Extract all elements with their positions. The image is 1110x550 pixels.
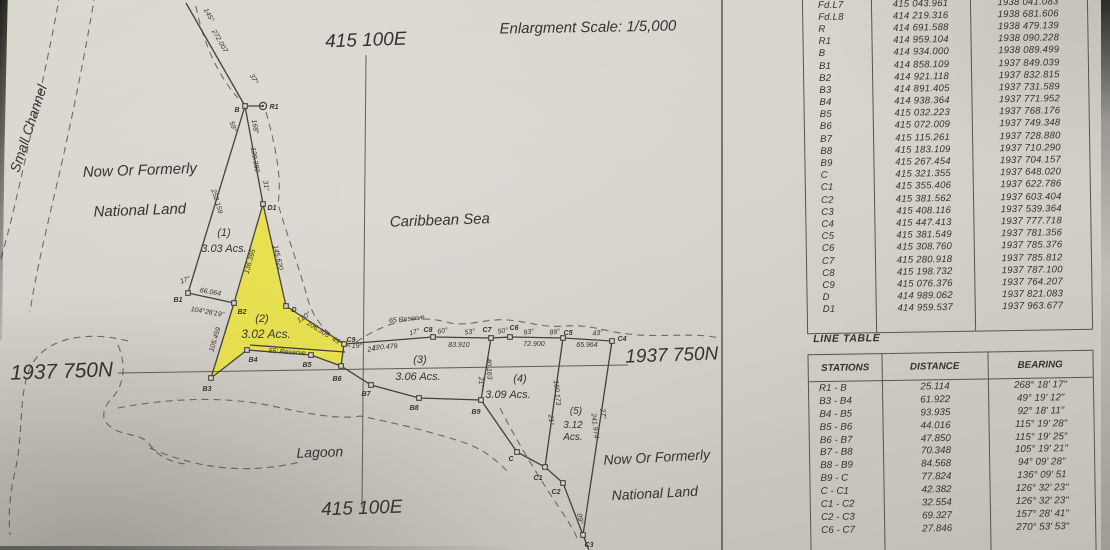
easting: 414 938.364 [872,95,971,108]
northing: 1937 710.290 [972,142,1088,155]
easting: 414 934.000 [872,46,971,59]
stations-pair: C2 - C3 [811,511,884,523]
scan-edge-right [1101,0,1110,550]
distance: 47.850 [883,432,989,445]
northing: 1938 479.139 [970,20,1086,33]
northing: 1937 832.815 [971,69,1087,82]
bearing: 270° 53' 53" [990,520,1095,533]
column-header: STATIONS [809,362,882,374]
easting: 414 959.104 [871,34,970,47]
distance: 93.935 [882,406,988,419]
distance: 42.382 [884,483,990,496]
northing: 1938 089.499 [971,44,1087,57]
easting: 414 959.537 [876,302,975,315]
easting: 414 219.316 [871,9,970,22]
distance: 61.922 [882,393,988,406]
column-header: DISTANCE [882,360,988,373]
station-id: B3 [804,84,872,96]
station-id: B2 [804,72,872,84]
northing: 1937 728.880 [972,129,1088,142]
northing: 1937 781.356 [974,227,1090,240]
northing: 1937 648.020 [973,166,1089,179]
northing: 1937 821.083 [974,288,1090,301]
bearing: 115° 19' 28" [989,417,1094,430]
stations-pair: C6 - C7 [811,524,884,536]
bearing: 92° 18' 11" [988,404,1093,417]
station-id: Fd.L7 [803,0,871,11]
easting: 415 072.009 [873,119,972,132]
easting: 415 321.355 [874,168,973,181]
distance: 44.016 [883,419,989,432]
northing: 1937 768.176 [972,105,1088,118]
station-id: R [803,23,871,35]
station-id: C [806,169,874,181]
easting: 415 198.732 [875,265,974,278]
easting: 415 032.223 [873,107,972,120]
easting: 415 408.116 [874,204,973,217]
station-id: C5 [807,230,875,242]
stations-pair: B6 - B7 [810,434,883,446]
stations-pair: B5 - B6 [810,421,883,433]
northing: 1937 764.207 [974,276,1090,289]
station-id: C6 [807,243,875,255]
station-id: C4 [806,218,874,230]
easting: 415 381.549 [875,229,974,242]
station-id: D1 [808,303,876,315]
station-id: B [804,48,872,60]
easting: 415 043.961 [871,0,970,10]
station-id: D [807,291,875,303]
station-id: R1 [803,35,871,47]
northing: 1937 963.677 [975,300,1091,313]
northing: 1937 849.039 [971,56,1087,69]
stations-pair: C1 - C2 [811,498,884,510]
station-id: B8 [805,145,873,157]
northing: 1937 749.348 [972,117,1088,130]
station-id: B7 [805,133,873,145]
scanned-survey-plan: Enlargment Scale: 1/5,000415 100E415 100… [0,0,1110,550]
easting: 414 691.588 [871,22,970,35]
station-id: C2 [806,194,874,206]
easting: 415 280.918 [875,253,974,266]
northing: 1937 787.100 [974,264,1090,277]
bearing: 126° 32' 23" [990,482,1095,495]
coordinate-table: Fd.L7415 043.9611938 041.083Fd.L8414 219… [802,0,1093,334]
northing: 1938 681.606 [970,8,1086,21]
northing: 1937 785.812 [974,251,1090,264]
station-id: C8 [807,267,875,279]
line-table: STATIONSDISTANCEBEARINGR1 - B25.114268° … [807,350,1096,550]
easting: 415 267.454 [873,156,972,169]
distance: 27.846 [884,522,990,535]
northing: 1937 622.786 [973,178,1089,191]
distance: 84.568 [883,458,989,471]
easting: 415 115.261 [873,131,972,144]
station-id: C9 [807,279,875,291]
stations-pair: R1 - B [809,382,882,394]
distance: 77.824 [883,471,989,484]
tables-panel: Fd.L7415 043.9611938 041.083Fd.L8414 219… [0,0,1110,550]
northing: 1937 771.952 [971,93,1087,106]
northing: 1938 090.228 [970,32,1086,45]
easting: 415 381.562 [874,192,973,205]
station-id: B1 [804,60,872,72]
bearing: 94° 09' 28" [989,456,1094,469]
distance: 70.348 [883,445,989,458]
bearing: 126° 32' 23" [990,495,1095,508]
easting: 414 989.062 [875,290,974,303]
stations-pair: B3 - B4 [809,395,882,407]
scan-edge-bottom [0,546,520,550]
northing: 1937 785.376 [974,239,1090,252]
station-id: C7 [807,255,875,267]
northing: 1937 704.157 [972,154,1088,167]
bearing: 136° 09' 51 [989,469,1094,482]
distance: 69.327 [884,509,990,522]
northing: 1937 603.404 [973,190,1089,203]
easting: 415 355.406 [874,180,973,193]
bearing: 105° 19' 21" [989,443,1094,456]
station-id: B5 [805,108,873,120]
northing: 1937 731.589 [971,81,1087,94]
line-table-title: LINE TABLE [813,332,880,345]
stations-pair: B9 - C [810,472,883,484]
bearing: 115° 19' 25" [989,430,1094,443]
easting: 414 891.405 [872,83,971,96]
stations-pair: B4 - B5 [809,408,882,420]
station-id: C1 [806,182,874,194]
distance: 25.114 [882,380,988,393]
distance: 32.554 [884,496,990,509]
station-id: B6 [805,121,873,133]
easting: 415 076.376 [875,278,974,291]
bearing: 157° 28' 41" [990,508,1095,521]
column-header: BEARING [988,358,1093,371]
station-id: B9 [805,157,873,169]
bearing: 49° 19' 12" [988,392,1093,405]
easting: 415 447.413 [874,217,973,230]
station-id: Fd.L8 [803,11,871,23]
easting: 414 921.118 [872,70,971,83]
stations-pair: B8 - B9 [810,459,883,471]
easting: 415 183.109 [873,143,972,156]
stations-pair: C - C1 [811,485,884,497]
easting: 414 858.109 [872,58,971,71]
easting: 415 308.760 [875,241,974,254]
station-id: B4 [804,96,872,108]
station-id: C3 [806,206,874,218]
northing: 1937 539.364 [973,203,1089,216]
northing: 1937 777.718 [973,215,1089,228]
stations-pair: B7 - B8 [810,446,883,458]
bearing: 268° 18' 17" [988,379,1093,392]
